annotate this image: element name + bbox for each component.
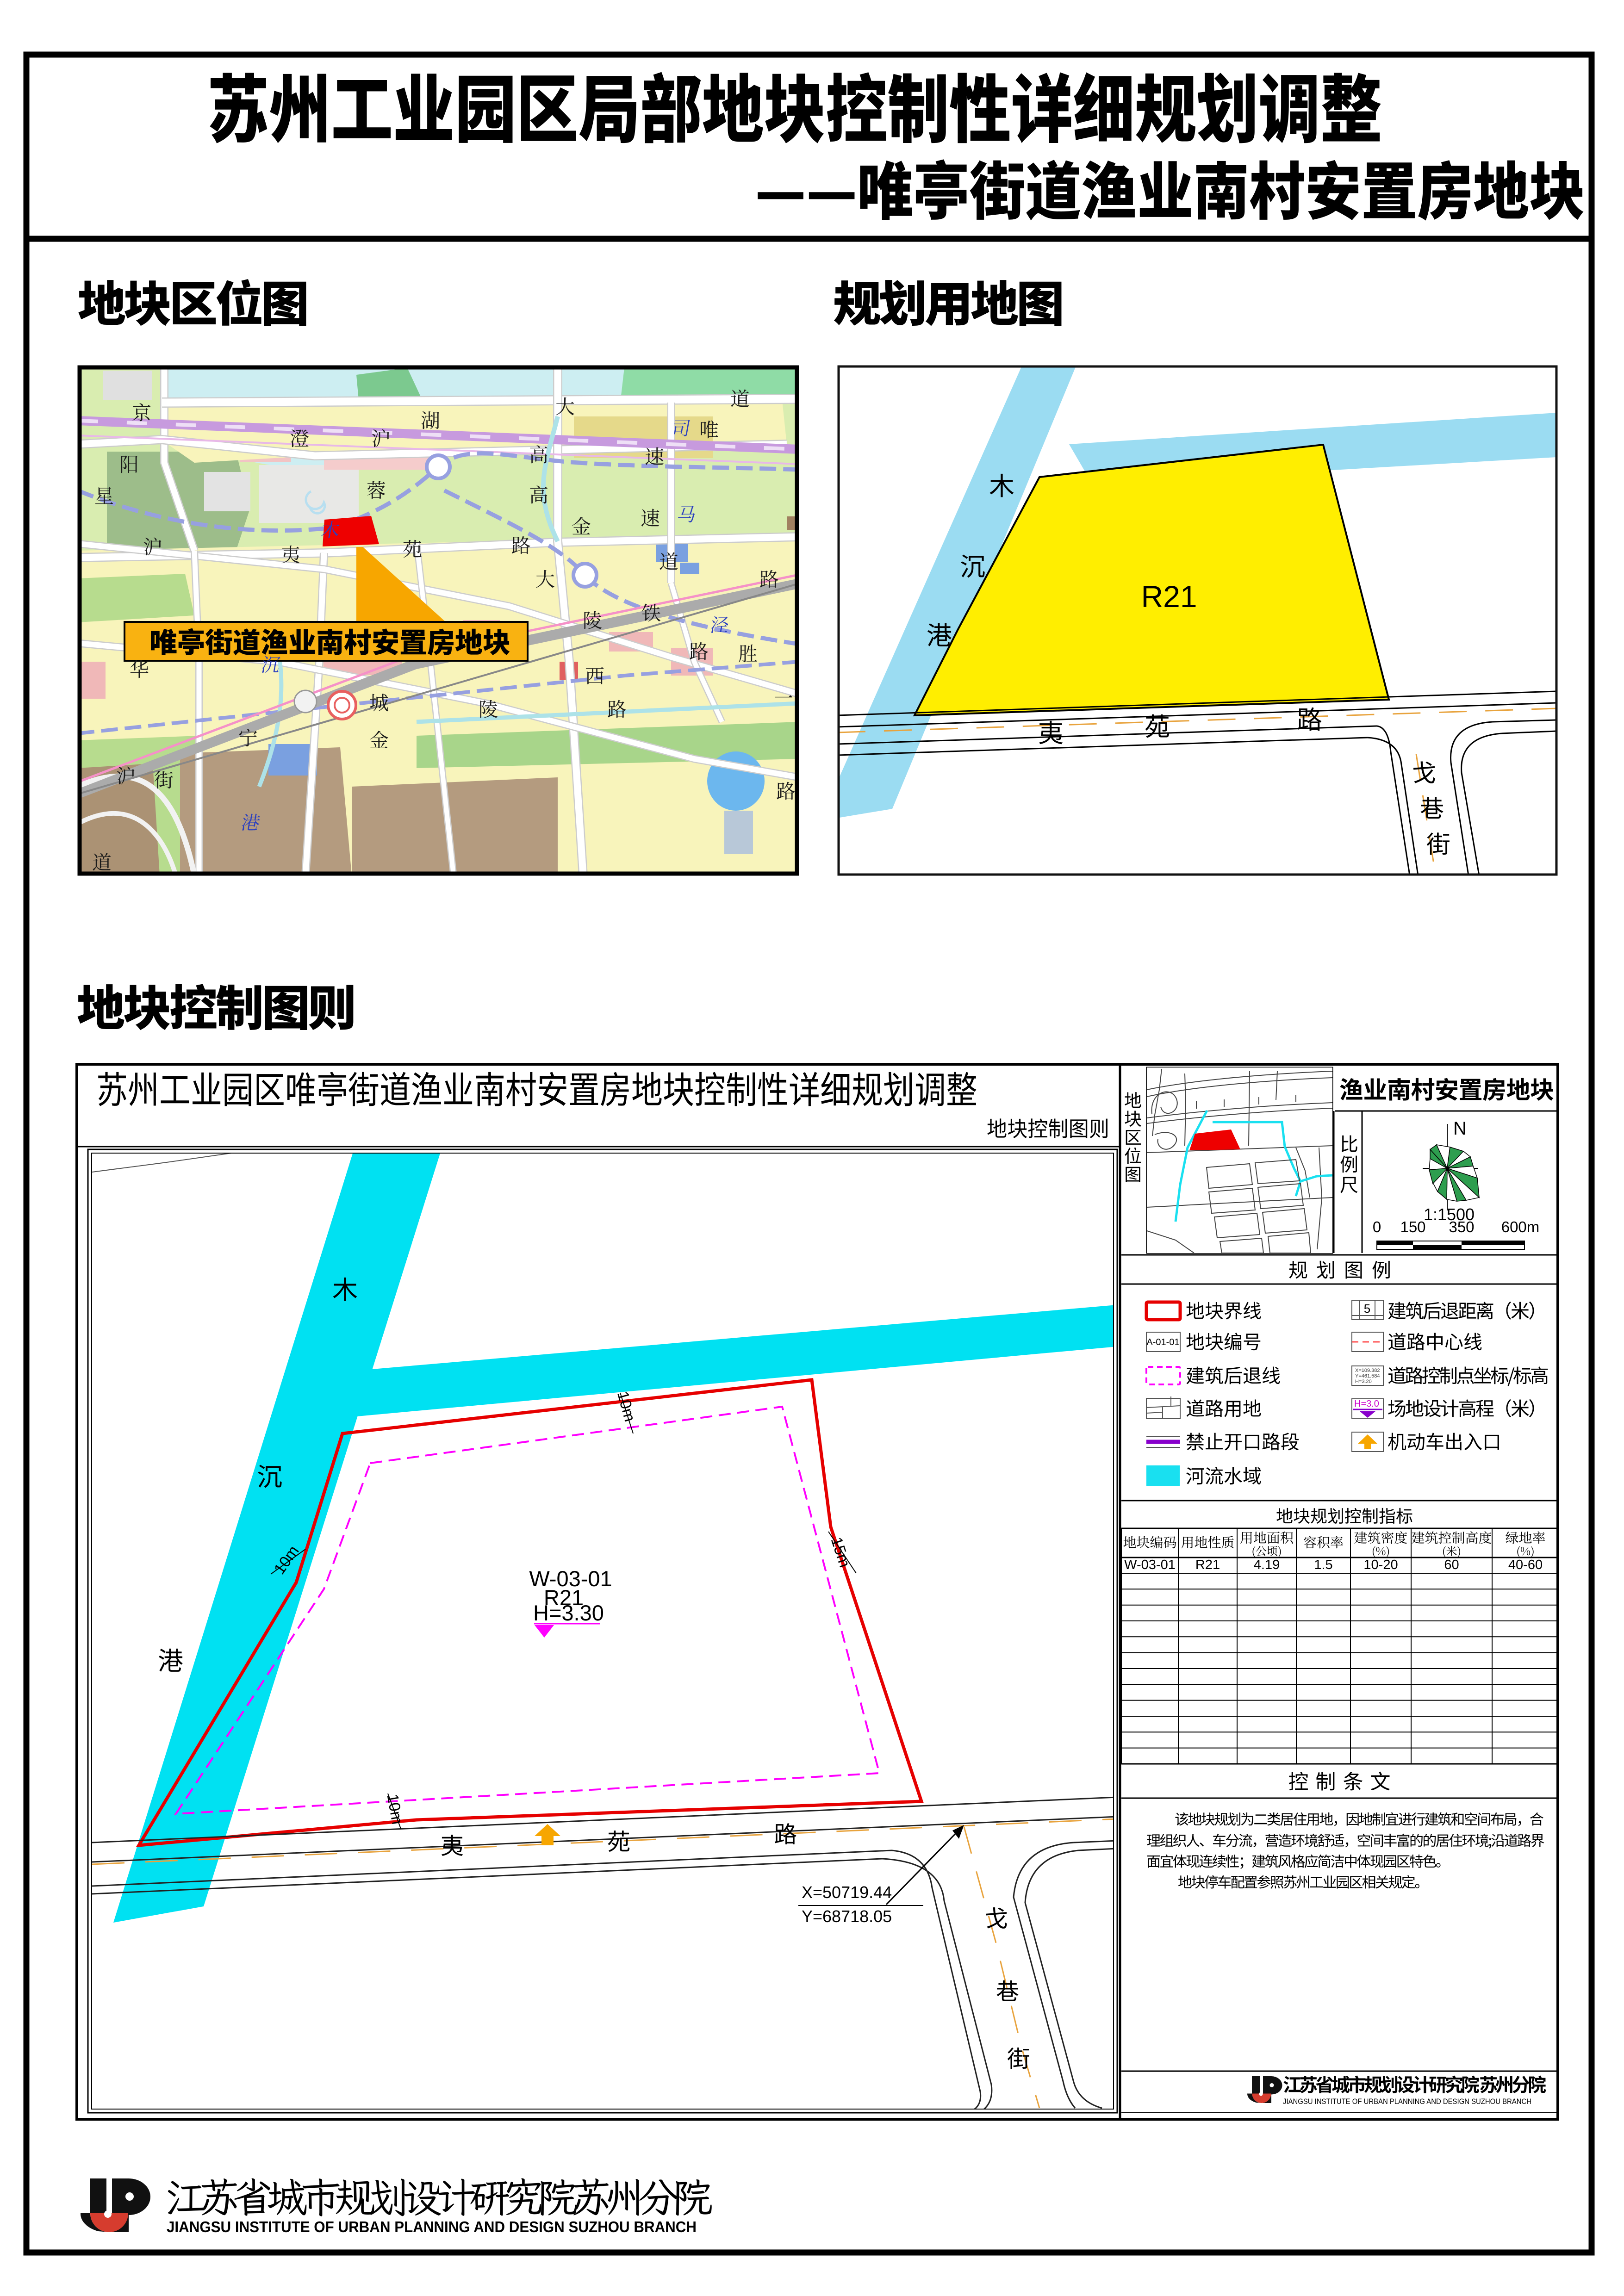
svg-text:600m: 600m	[1501, 1218, 1540, 1235]
svg-text:W-03-01: W-03-01	[1124, 1558, 1176, 1572]
svg-text:Y=68718.05: Y=68718.05	[802, 1907, 892, 1926]
svg-text:1.5: 1.5	[1314, 1558, 1332, 1572]
svg-text:40-60: 40-60	[1508, 1558, 1543, 1572]
svg-text:X=109.382: X=109.382	[1355, 1368, 1380, 1373]
svg-text:A-01-01: A-01-01	[1146, 1337, 1179, 1347]
svg-text:R21: R21	[1195, 1558, 1220, 1572]
svg-text:JIANGSU INSTITUTE OF URBAN PLA: JIANGSU INSTITUTE OF URBAN PLANNING AND …	[167, 2218, 697, 2235]
svg-text:10-20: 10-20	[1363, 1558, 1398, 1572]
svg-text:H=3.0: H=3.0	[1354, 1399, 1379, 1409]
svg-text:Y=461.584: Y=461.584	[1355, 1373, 1380, 1379]
svg-text:JIANGSU INSTITUTE OF URBAN PLA: JIANGSU INSTITUTE OF URBAN PLANNING AND …	[1283, 2097, 1531, 2106]
svg-text:H=3.30: H=3.30	[533, 1601, 604, 1625]
svg-text:150: 150	[1400, 1218, 1425, 1235]
svg-text:H=3.20: H=3.20	[1355, 1379, 1372, 1384]
svg-text:60: 60	[1444, 1558, 1459, 1572]
svg-text:4.19: 4.19	[1254, 1558, 1280, 1572]
svg-text:R21: R21	[1141, 579, 1197, 614]
svg-text:X=50719.44: X=50719.44	[802, 1883, 892, 1902]
svg-text:5: 5	[1364, 1302, 1370, 1316]
svg-text:350: 350	[1449, 1218, 1474, 1235]
svg-text:N: N	[1453, 1118, 1467, 1139]
svg-text:0: 0	[1373, 1218, 1381, 1235]
